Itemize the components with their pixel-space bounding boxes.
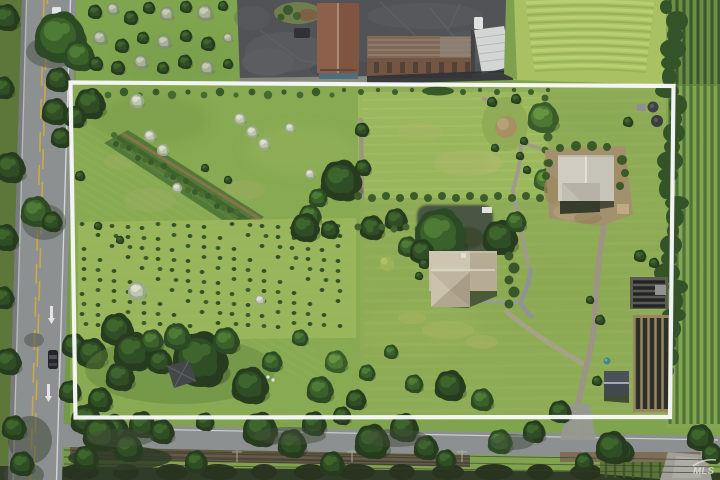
svg-text:MLS: MLS <box>693 466 714 477</box>
